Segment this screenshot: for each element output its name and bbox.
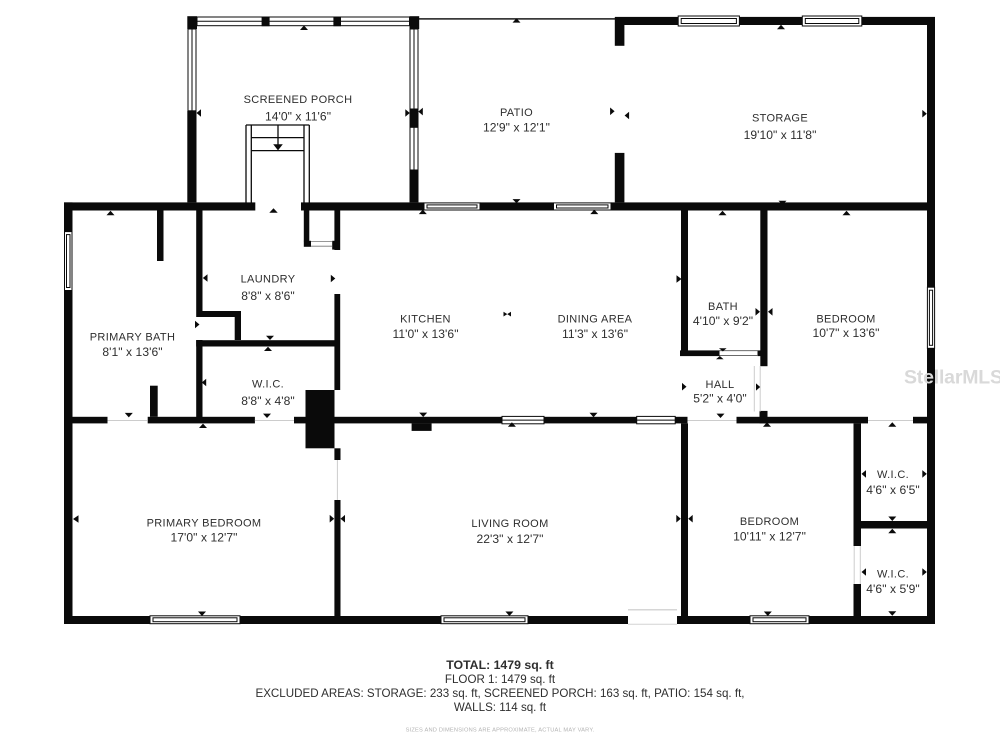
svg-text:SCREENED PORCH: SCREENED PORCH [244, 94, 353, 106]
svg-text:8'8" x 4'8": 8'8" x 4'8" [241, 394, 294, 408]
svg-text:WALLS: 114 sq. ft: WALLS: 114 sq. ft [454, 701, 547, 714]
svg-text:4'6" x 6'5": 4'6" x 6'5" [866, 483, 919, 497]
svg-text:STORAGE: STORAGE [752, 113, 808, 125]
svg-text:11'0" x 13'6": 11'0" x 13'6" [392, 327, 458, 341]
svg-text:EXCLUDED AREAS: STORAGE: 233 s: EXCLUDED AREAS: STORAGE: 233 sq. ft, SCR… [255, 687, 744, 700]
svg-text:KITCHEN: KITCHEN [400, 314, 451, 326]
svg-text:SIZES AND DIMENSIONS ARE APPRO: SIZES AND DIMENSIONS ARE APPROXIMATE, AC… [406, 728, 595, 734]
svg-text:TOTAL: 1479 sq. ft: TOTAL: 1479 sq. ft [446, 658, 554, 672]
svg-text:BEDROOM: BEDROOM [816, 314, 875, 326]
svg-text:LAUNDRY: LAUNDRY [241, 274, 296, 286]
svg-text:10'7" x 13'6": 10'7" x 13'6" [813, 326, 880, 340]
svg-text:W.I.C.: W.I.C. [877, 569, 909, 581]
svg-text:BATH: BATH [708, 301, 738, 313]
svg-text:PATIO: PATIO [500, 107, 533, 119]
svg-text:12'9" x 12'1": 12'9" x 12'1" [483, 121, 550, 135]
svg-text:17'0" x 12'7": 17'0" x 12'7" [171, 531, 238, 545]
svg-text:4'10" x 9'2": 4'10" x 9'2" [693, 314, 753, 328]
svg-text:11'3" x 13'6": 11'3" x 13'6" [562, 327, 628, 341]
svg-text:8'1" x 13'6": 8'1" x 13'6" [102, 345, 162, 359]
svg-text:BEDROOM: BEDROOM [740, 516, 799, 528]
svg-text:FLOOR 1: 1479 sq. ft: FLOOR 1: 1479 sq. ft [445, 673, 556, 686]
svg-text:W.I.C.: W.I.C. [252, 379, 284, 391]
svg-text:PRIMARY BATH: PRIMARY BATH [90, 332, 176, 344]
svg-text:22'3" x 12'7": 22'3" x 12'7" [477, 532, 544, 546]
svg-text:14'0" x 11'6": 14'0" x 11'6" [265, 110, 331, 124]
svg-text:W.I.C.: W.I.C. [877, 469, 909, 481]
svg-text:19'10" x 11'8": 19'10" x 11'8" [744, 128, 817, 142]
svg-text:LIVING ROOM: LIVING ROOM [471, 518, 548, 530]
svg-text:PRIMARY BEDROOM: PRIMARY BEDROOM [147, 518, 262, 530]
svg-text:StellarMLS: StellarMLS [904, 367, 1000, 389]
svg-text:10'11" x 12'7": 10'11" x 12'7" [733, 530, 806, 544]
svg-text:5'2" x 4'0": 5'2" x 4'0" [693, 392, 746, 406]
svg-text:8'8" x 8'6": 8'8" x 8'6" [241, 289, 294, 303]
svg-text:4'6" x 5'9": 4'6" x 5'9" [866, 582, 919, 596]
svg-text:DINING AREA: DINING AREA [558, 314, 633, 326]
svg-text:HALL: HALL [706, 379, 735, 391]
